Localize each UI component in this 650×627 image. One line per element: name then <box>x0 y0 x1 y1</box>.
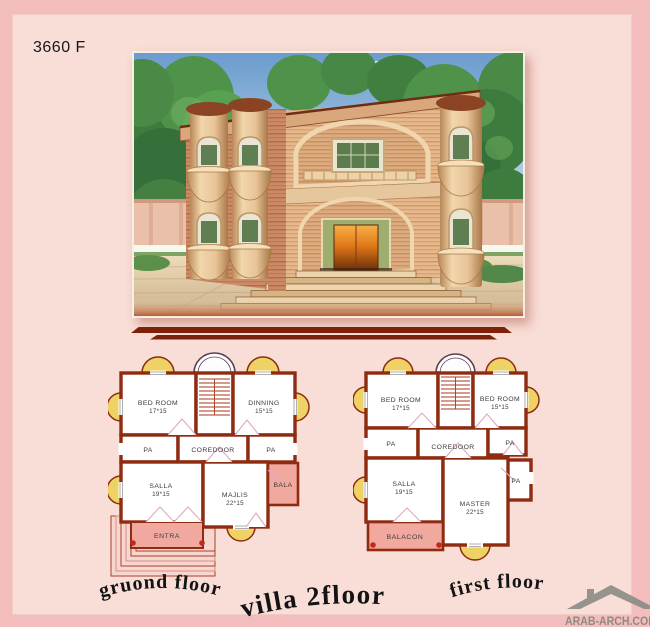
image-bottom-fade <box>134 297 523 316</box>
column-dot <box>199 540 205 546</box>
room-label: PA <box>511 478 520 485</box>
room-label: BED ROOM <box>381 397 421 404</box>
right-tower <box>436 95 486 287</box>
villa-render <box>134 53 523 316</box>
roof-icon <box>567 585 650 609</box>
room-label: COREDOOR <box>191 447 234 454</box>
left-towers <box>186 98 286 291</box>
room-size: 19*15 <box>152 491 170 498</box>
room-label: BALA <box>274 482 293 489</box>
first-floor-plan: BED ROOM 17*15 BED ROOM 15*15 PA COREDOO… <box>353 350 583 590</box>
site-watermark: ARAB-ARCH.COM <box>561 577 650 627</box>
room-size: 22*15 <box>466 509 484 516</box>
page-frame: 3660 F <box>0 0 650 627</box>
content-panel: 3660 F <box>12 14 632 615</box>
room-label: SALLA <box>149 483 172 490</box>
room-size: 17*15 <box>149 408 167 415</box>
divider-bar <box>150 335 497 340</box>
room-label: PA <box>505 440 514 447</box>
room-size: 15*15 <box>255 408 273 415</box>
room-label: PA <box>266 447 275 454</box>
upper-window <box>332 139 384 172</box>
villa-photo <box>132 51 525 318</box>
room-label: SALLA <box>392 481 415 488</box>
room-label: PA <box>386 441 395 448</box>
divider-bar <box>131 327 512 333</box>
room-size: 19*15 <box>395 489 413 496</box>
room-size: 17*15 <box>392 405 410 412</box>
plan-reference-code: 3660 F <box>33 39 86 57</box>
room-label: MAJLIS <box>222 492 248 499</box>
room-label: BALACON <box>387 534 424 541</box>
column-dot <box>436 542 442 548</box>
column-dot <box>130 540 136 546</box>
room-label: ENTRA <box>154 533 180 540</box>
room-label: BED ROOM <box>480 396 520 403</box>
room-size: 22*15 <box>226 500 244 507</box>
room-label: PA <box>143 447 152 454</box>
room-label: DINNING <box>248 400 280 407</box>
room-label: BED ROOM <box>138 400 178 407</box>
watermark-text: ARAB-ARCH.COM <box>565 616 650 627</box>
room-label: MASTER <box>460 501 491 508</box>
ground-floor-plan: BED ROOM 17*15 DINNING 15*15 PA COREDOOR… <box>108 350 338 590</box>
villa-building <box>180 91 491 310</box>
room-size: 15*15 <box>491 404 509 411</box>
column-dot <box>370 542 376 548</box>
room-label: COREDOOR <box>431 444 474 451</box>
